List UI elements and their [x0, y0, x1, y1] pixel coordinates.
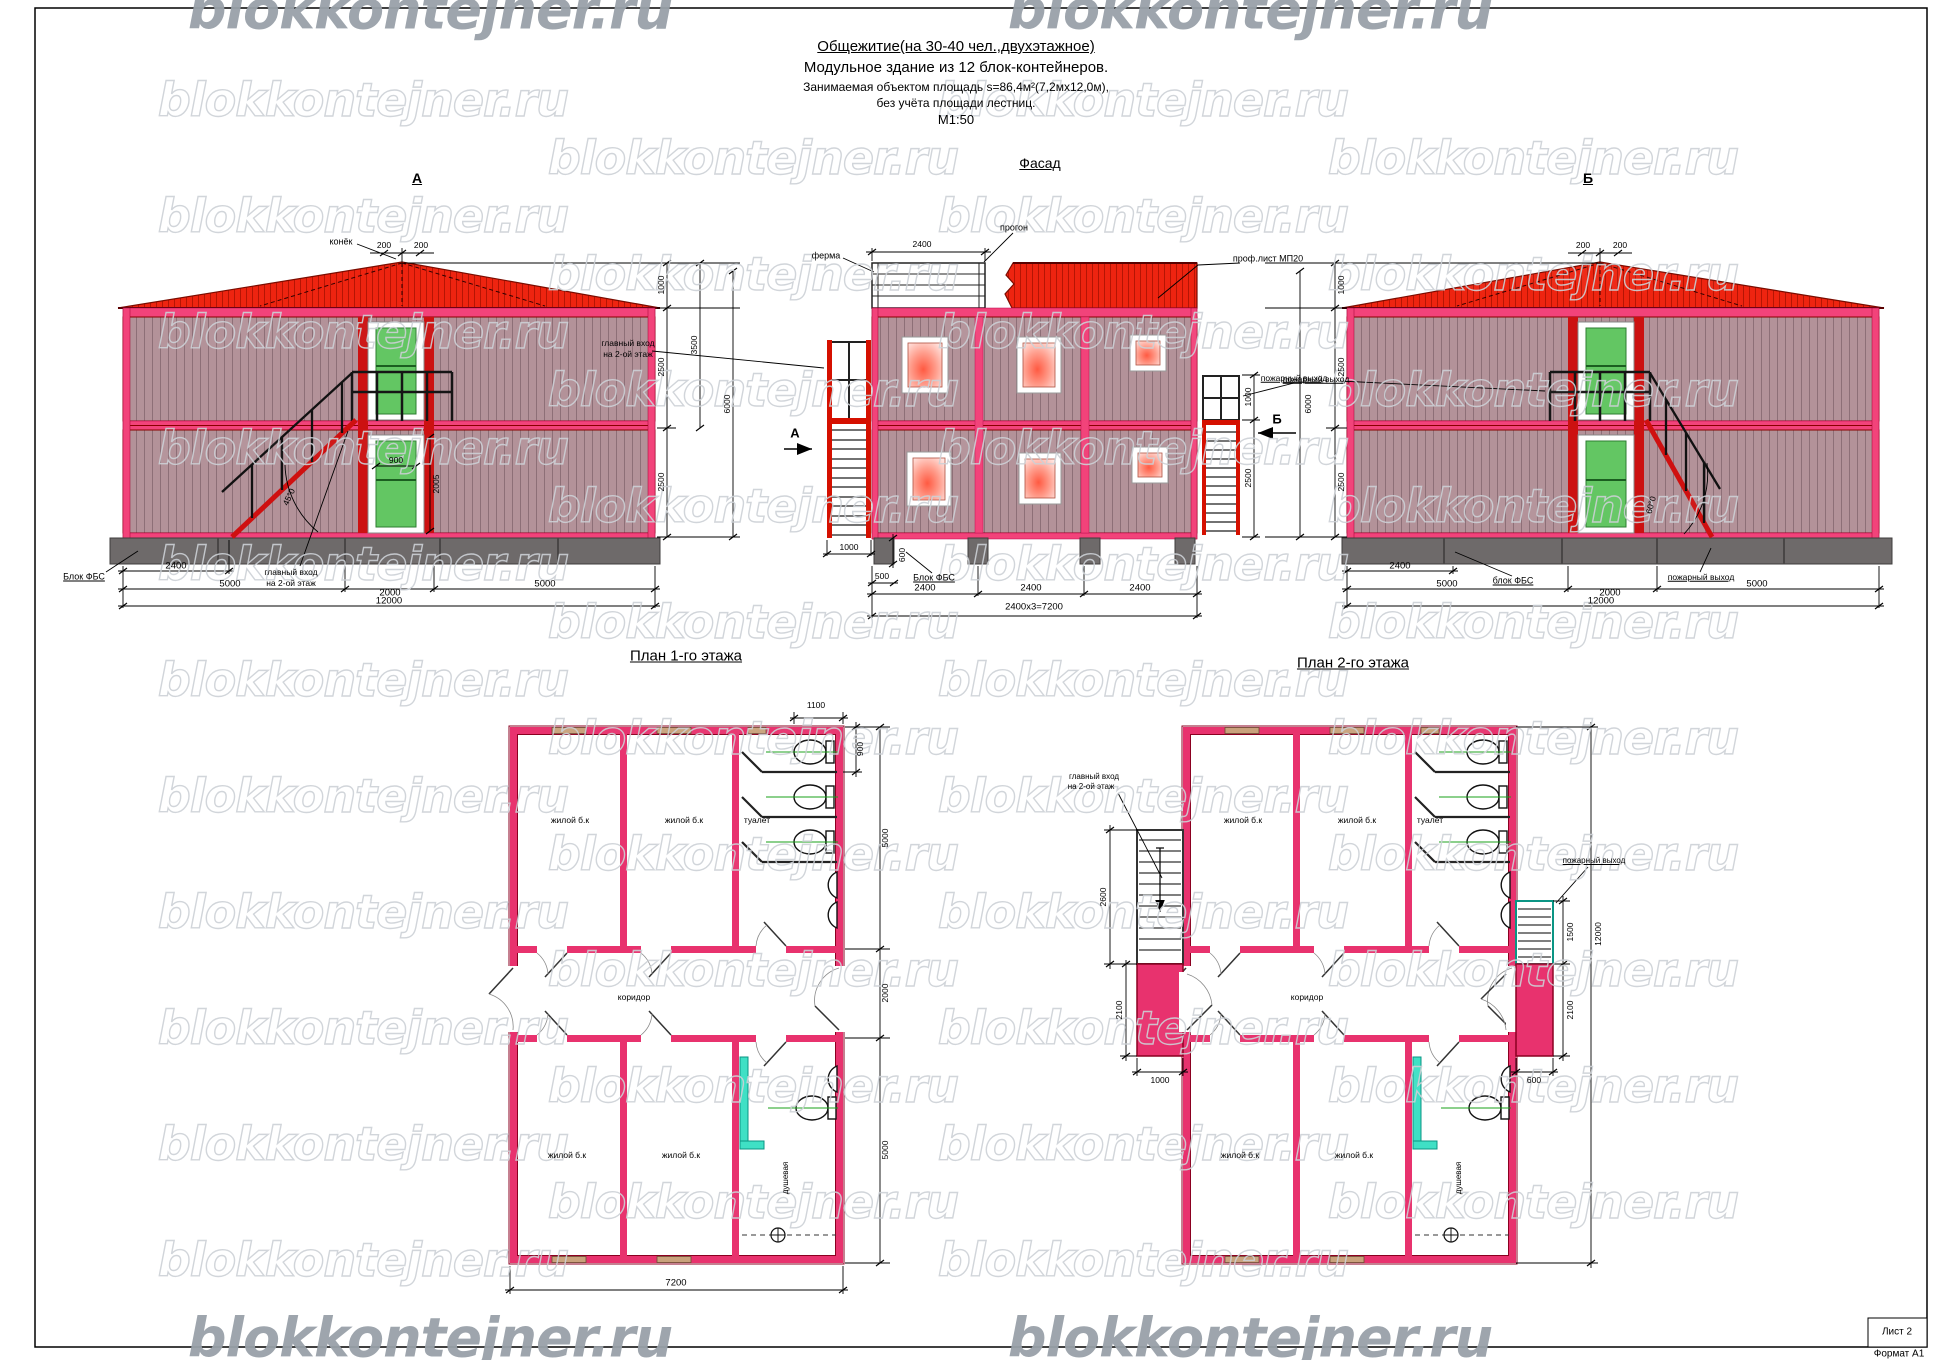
- callout-main-entrance-p2: на 2-ой этаж: [1068, 783, 1115, 791]
- drawing-title: Общежитие(на 30-40 чел.,двухэтажное): [817, 38, 1094, 55]
- view-title-elevation-b: Б: [1583, 171, 1593, 185]
- dim-label-46: 1000: [1337, 276, 1346, 295]
- callout-progon: прогон: [1000, 224, 1028, 233]
- dim-label-42: 2400х3=7200: [1005, 602, 1063, 612]
- dim-label-41: 2400: [1129, 583, 1150, 593]
- room-zhiloy-1b: жилой б.к: [665, 816, 703, 825]
- dim-label-34: 2500: [1244, 469, 1253, 488]
- view-title-elevation-a: А: [412, 171, 422, 185]
- dim-label-33: 1000: [1244, 388, 1253, 407]
- dim-label-63: 7200: [665, 1278, 686, 1288]
- dim-label-74: 2100: [1115, 1001, 1124, 1020]
- dim-label-78: 2100: [1566, 1001, 1575, 1020]
- dim-label-9: 2500: [657, 358, 666, 377]
- dim-label-25: 2400: [913, 240, 932, 249]
- room-zhiloy-1c: жилой б.к: [548, 1151, 586, 1160]
- room-zhiloy-1d: жилой б.к: [662, 1151, 700, 1160]
- dim-label-77: 1500: [1566, 923, 1575, 942]
- view-title-facade: Фасад: [1019, 156, 1060, 170]
- dim-label-40: 2400: [1020, 583, 1041, 593]
- dim-label-14: 2005: [432, 475, 441, 494]
- dim-label-56: 5000: [1746, 579, 1767, 589]
- callout-main-entrance-f2: на 2-ой этаж: [603, 350, 653, 359]
- dim-label-20: 5000: [219, 579, 240, 589]
- room-koridor-2: коридор: [1291, 993, 1323, 1002]
- dim-label-39: 2400: [914, 583, 935, 593]
- facade-fire-ladder: [1202, 375, 1240, 535]
- dim-label-61: 2000: [881, 984, 890, 1003]
- dim-label-51: 2400: [1389, 561, 1410, 571]
- facade-left-stair: [827, 340, 871, 538]
- dim-label-58: 1100: [807, 701, 825, 710]
- dim-label-80: 12000: [1594, 922, 1603, 946]
- drawing-linework: [0, 0, 1950, 1360]
- dim-label-60: 5000: [881, 829, 890, 848]
- drawing-scale: М1:50: [938, 112, 974, 127]
- dim-label-12: 6000: [723, 395, 732, 414]
- room-koridor-1: коридор: [618, 993, 650, 1002]
- dim-label-79: 600: [1527, 1076, 1541, 1085]
- dim-label-73: 2600: [1099, 888, 1108, 907]
- sheet-format: Формат А1: [1874, 1349, 1925, 1360]
- callout-main-entrance-f1: главный вход: [601, 339, 654, 348]
- drawing-area-note: без учёта площади лестниц.: [877, 96, 1036, 110]
- dim-label-52: 5000: [1436, 579, 1457, 589]
- dim-label-47: 2500: [1337, 358, 1346, 377]
- callout-main-entrance-a1: главный вход: [264, 568, 317, 577]
- callout-fire-exit-b-bottom: пожарный выход: [1668, 573, 1735, 582]
- dim-label-44: 200: [1613, 241, 1627, 250]
- dim-label-36: 600: [898, 548, 907, 562]
- callout-blok-fbs-f: Блок ФБС: [913, 574, 955, 583]
- room-tualet-2: туалет: [1417, 816, 1443, 825]
- sheet-number: Лист 2: [1882, 1327, 1912, 1338]
- callout-main-entrance-p1: главный вход: [1069, 773, 1119, 781]
- callout-profsheet: проф.лист МП20: [1233, 255, 1303, 264]
- callout-ferma: ферма: [812, 252, 841, 261]
- dim-label-22: 5000: [534, 579, 555, 589]
- dim-label-62: 5000: [881, 1141, 890, 1160]
- dim-label-37: 500: [875, 572, 889, 581]
- drawing-sheet: blokkontejner.rublokkontejner.rublokkont…: [0, 0, 1950, 1360]
- dim-label-48: 2500: [1337, 473, 1346, 492]
- dim-label-10: 2500: [657, 473, 666, 492]
- drawing-area-line: Занимаемая объектом площадь s=86,4м²(7,2…: [803, 80, 1109, 94]
- dim-label-75: 1000: [1151, 1076, 1170, 1085]
- drawing-subtitle: Модульное здание из 12 блок-контейнеров.: [804, 59, 1108, 76]
- dim-label-23: 12000: [376, 596, 402, 606]
- callout-fire-exit-b-top: пожарный выход: [1261, 374, 1328, 383]
- dim-label-43: 200: [1576, 241, 1590, 250]
- section-marker-a: А: [790, 427, 799, 440]
- dim-label-17: 2400: [165, 561, 186, 571]
- dim-label-6: 200: [377, 241, 391, 250]
- room-zhiloy-2d: жилой б.к: [1335, 1151, 1373, 1160]
- dim-label-59: 900: [856, 742, 865, 756]
- dim-label-11: 3500: [690, 336, 699, 355]
- callout-main-entrance-a2: на 2-ой этаж: [266, 579, 316, 588]
- dim-label-49: 6000: [1304, 395, 1313, 414]
- view-title-plan1: План 1-го этажа: [630, 649, 742, 664]
- callout-blok-fbs-a: Блок ФБС: [63, 573, 105, 582]
- view-title-plan2: План 2-го этажа: [1297, 656, 1409, 671]
- callout-fire-exit-p: пожарный выход: [1563, 857, 1626, 865]
- room-zhiloy-1a: жилой б.к: [551, 816, 589, 825]
- room-dushevaya-2: душевая: [1455, 1162, 1463, 1194]
- dim-label-8: 1000: [657, 276, 666, 295]
- room-zhiloy-2a: жилой б.к: [1224, 816, 1262, 825]
- section-marker-b: Б: [1272, 413, 1281, 426]
- room-zhiloy-2c: жилой б.к: [1221, 1151, 1259, 1160]
- dim-label-35: 1000: [840, 543, 859, 552]
- facade: [784, 263, 1296, 564]
- callout-blok-fbs-b: блок ФБС: [1493, 577, 1534, 586]
- room-dushevaya-1: душевая: [782, 1162, 790, 1194]
- dim-label-13: 900: [389, 456, 403, 465]
- dim-label-57: 12000: [1588, 596, 1614, 606]
- dim-label-7: 200: [414, 241, 428, 250]
- room-tualet-1: туалет: [744, 816, 770, 825]
- callout-konek: конёк: [330, 238, 353, 247]
- room-zhiloy-2b: жилой б.к: [1338, 816, 1376, 825]
